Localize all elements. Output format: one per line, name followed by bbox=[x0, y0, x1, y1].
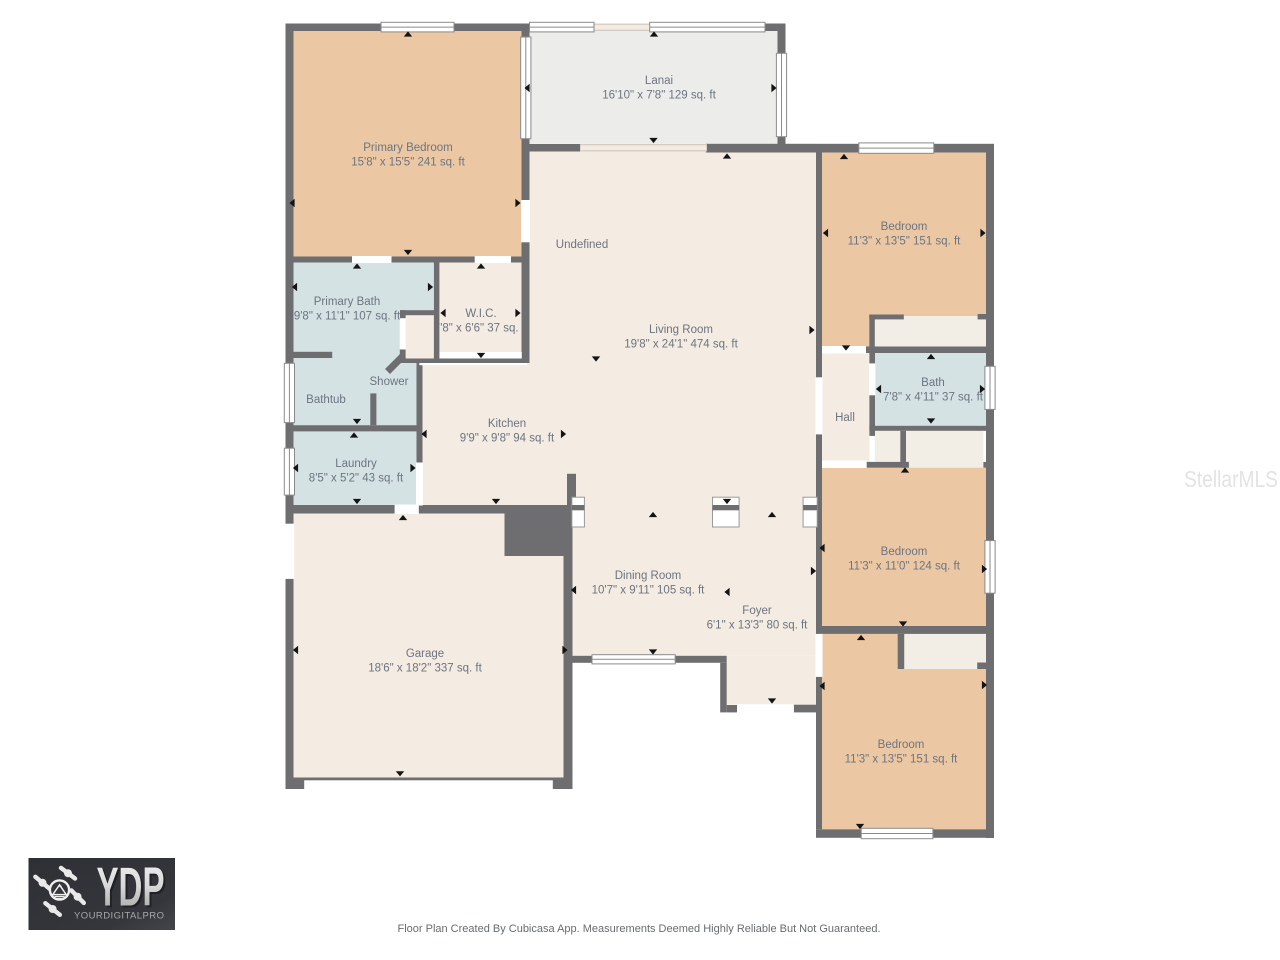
svg-text:11'3" x 13'5" 151 sq. ft: 11'3" x 13'5" 151 sq. ft bbox=[848, 236, 962, 248]
svg-text:Kitchen: Kitchen bbox=[488, 418, 526, 430]
svg-text:9'8" x 11'1" 107 sq. ft: 9'8" x 11'1" 107 sq. ft bbox=[294, 311, 401, 323]
svg-text:Bedroom: Bedroom bbox=[881, 221, 928, 233]
svg-text:Bath: Bath bbox=[921, 377, 945, 389]
svg-text:YDP: YDP bbox=[97, 856, 165, 918]
svg-text:19'8" x 24'1" 474 sq. ft: 19'8" x 24'1" 474 sq. ft bbox=[624, 339, 738, 351]
svg-text:W.I.C.: W.I.C. bbox=[465, 308, 496, 320]
svg-text:10'7" x 9'11" 105 sq. ft: 10'7" x 9'11" 105 sq. ft bbox=[592, 585, 706, 597]
svg-text:Undefined: Undefined bbox=[556, 239, 608, 251]
svg-text:Dining Room: Dining Room bbox=[615, 570, 681, 582]
svg-text:11'3" x 13'5" 151 sq. ft: 11'3" x 13'5" 151 sq. ft bbox=[845, 754, 959, 766]
svg-text:Lanai: Lanai bbox=[645, 75, 673, 87]
svg-text:7'8" x 6'6" 37 sq. ft: 7'8" x 6'6" 37 sq. ft bbox=[434, 323, 529, 335]
svg-text:Floor Plan Created By Cubicasa: Floor Plan Created By Cubicasa App. Meas… bbox=[397, 923, 880, 935]
svg-text:18'6" x 18'2" 337 sq. ft: 18'6" x 18'2" 337 sq. ft bbox=[368, 663, 482, 675]
svg-text:Laundry: Laundry bbox=[335, 458, 377, 470]
svg-text:Shower: Shower bbox=[370, 376, 409, 388]
svg-text:YOURDIGITALPRO: YOURDIGITALPRO bbox=[74, 911, 164, 922]
svg-text:Primary Bedroom: Primary Bedroom bbox=[363, 142, 452, 154]
svg-text:Bathtub: Bathtub bbox=[306, 394, 346, 406]
svg-text:Bedroom: Bedroom bbox=[881, 546, 928, 558]
svg-text:Living Room: Living Room bbox=[649, 324, 713, 336]
svg-text:9'9" x 9'8" 94 sq. ft: 9'9" x 9'8" 94 sq. ft bbox=[460, 433, 555, 445]
svg-text:StellarMLS: StellarMLS bbox=[1184, 466, 1278, 492]
svg-text:Garage: Garage bbox=[406, 648, 444, 660]
svg-text:Primary Bath: Primary Bath bbox=[314, 296, 380, 308]
svg-text:7'8" x 4'11" 37 sq. ft: 7'8" x 4'11" 37 sq. ft bbox=[883, 392, 984, 404]
svg-text:15'8" x 15'5" 241 sq. ft: 15'8" x 15'5" 241 sq. ft bbox=[351, 157, 465, 169]
svg-text:Hall: Hall bbox=[835, 412, 855, 424]
svg-text:8'5" x 5'2" 43 sq. ft: 8'5" x 5'2" 43 sq. ft bbox=[309, 473, 404, 485]
svg-text:11'3" x 11'0" 124 sq. ft: 11'3" x 11'0" 124 sq. ft bbox=[848, 561, 961, 573]
svg-text:Foyer: Foyer bbox=[742, 605, 772, 617]
svg-text:16'10" x 7'8" 129 sq. ft: 16'10" x 7'8" 129 sq. ft bbox=[602, 90, 716, 102]
svg-text:Bedroom: Bedroom bbox=[878, 739, 925, 751]
svg-text:6'1" x 13'3" 80 sq. ft: 6'1" x 13'3" 80 sq. ft bbox=[707, 620, 809, 632]
